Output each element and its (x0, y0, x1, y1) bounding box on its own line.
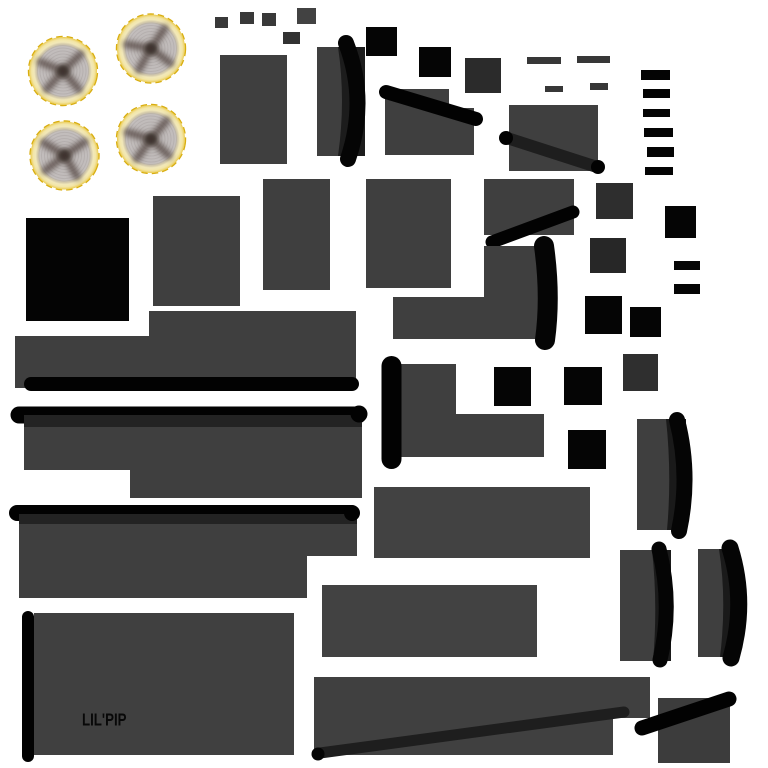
svg-text:LIL'PIP: LIL'PIP (82, 711, 127, 730)
